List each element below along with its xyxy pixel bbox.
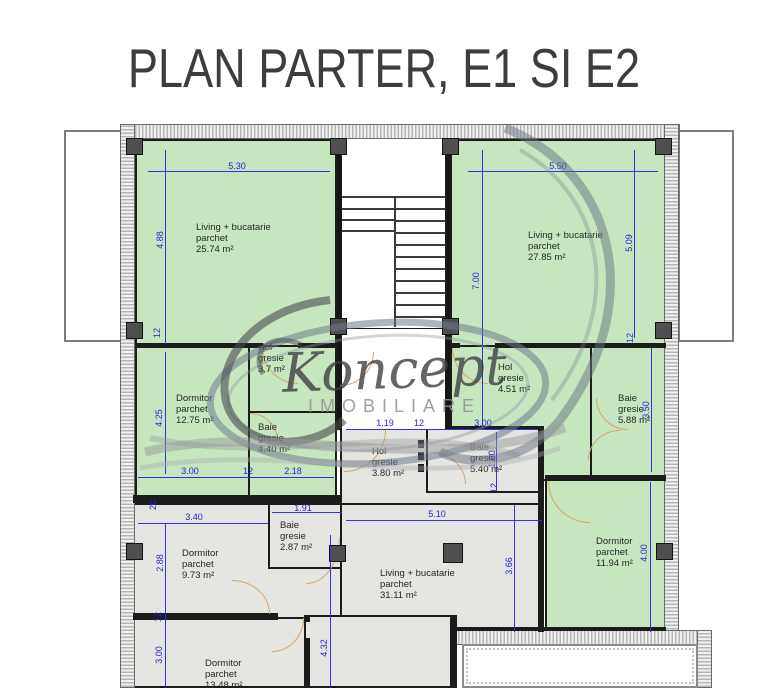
dim-label: 3.66 [504, 557, 514, 575]
dim-label: 4.32 [319, 639, 329, 657]
dim-label: 4.25 [154, 409, 164, 427]
room-label-hol-e1: Holgresie3.7 m² [258, 342, 285, 376]
column [442, 318, 459, 335]
dim-label: 5.50 [549, 161, 567, 171]
outer-wall-top [120, 124, 680, 139]
outer-wall-left [120, 124, 135, 688]
dim-label: 12 [243, 466, 253, 476]
room-label-living-parter: Living + bucatarieparchet31.11 m² [380, 568, 455, 602]
door-jamb [418, 464, 424, 472]
double-wall-e1 [133, 495, 342, 503]
room-label-dormitor-e2: Dormitorparchet11.94 m² [596, 536, 633, 570]
room-label-dormitor-e1: Dormitorparchet12.75 m² [176, 393, 214, 427]
column [329, 545, 346, 562]
column [655, 138, 672, 155]
balcony-left [64, 130, 122, 342]
column [126, 138, 143, 155]
room-label-dormitor2-parter: Dormitorparchet9.73 m² [182, 548, 218, 582]
dim-label: 3.00 [154, 646, 164, 664]
column [330, 318, 347, 335]
terrace-wall-bottom [450, 630, 712, 645]
dim-label: 12 [625, 333, 635, 343]
column [655, 322, 672, 339]
room-label-baie2-parter: Baiegresie2.87 m² [280, 520, 312, 554]
room-label-living-e2: Living + bucatarieparchet27.85 m² [528, 230, 603, 264]
dim-label: 2.18 [284, 466, 302, 476]
dim-label: 7.00 [471, 272, 481, 290]
room-label-baie-e1: Baiegresie4.40 m² [258, 422, 290, 456]
dim-label: 2.88 [155, 554, 165, 572]
dim-label: 5.09 [624, 234, 634, 252]
stair-divider [394, 196, 396, 327]
room-label-hol-parter: Holgresie3.80 m² [372, 446, 404, 480]
dim-label: 12 [489, 483, 499, 493]
column [656, 543, 673, 560]
balcony-right [678, 130, 734, 342]
room-label-hol-e2: Holgresie4.51 m² [498, 362, 530, 396]
dim-label: 1.91 [294, 503, 312, 513]
terrace [462, 644, 698, 688]
door-jamb [418, 452, 424, 460]
column [442, 138, 459, 155]
dim-label: 4.88 [155, 231, 165, 249]
column [330, 138, 347, 155]
dim-label: 20 [148, 500, 158, 510]
room-label-dormitor3-parter: Dormitorparchet13.48 m² [205, 658, 243, 688]
dim-label: 3.40 [185, 512, 203, 522]
dim-label: 4.00 [639, 544, 649, 562]
dim-label: 3.00 [474, 418, 492, 428]
dim-label: 5.30 [228, 161, 246, 171]
terrace-wall-right [697, 630, 712, 688]
dim-label: 5.10 [428, 509, 446, 519]
page-title: PLAN PARTER, E1 SI E2 [69, 36, 699, 100]
column [126, 322, 143, 339]
dim-label: 12 [152, 328, 162, 338]
room-label-living-e1: Living + bucatarieparchet25.74 m² [196, 222, 271, 256]
door-jamb [418, 440, 424, 448]
column [126, 543, 143, 560]
dim-label: 1.80 [487, 450, 497, 468]
floor-plan-screenshot: PLAN PARTER, E1 SI E2 [0, 0, 768, 688]
dim-label: 12 [153, 612, 163, 622]
dim-label: 3.50 [641, 401, 651, 419]
dim-label: 3.00 [181, 466, 199, 476]
column [443, 543, 463, 563]
dim-label: 1.19 [376, 418, 394, 428]
dim-label: 12 [414, 418, 424, 428]
